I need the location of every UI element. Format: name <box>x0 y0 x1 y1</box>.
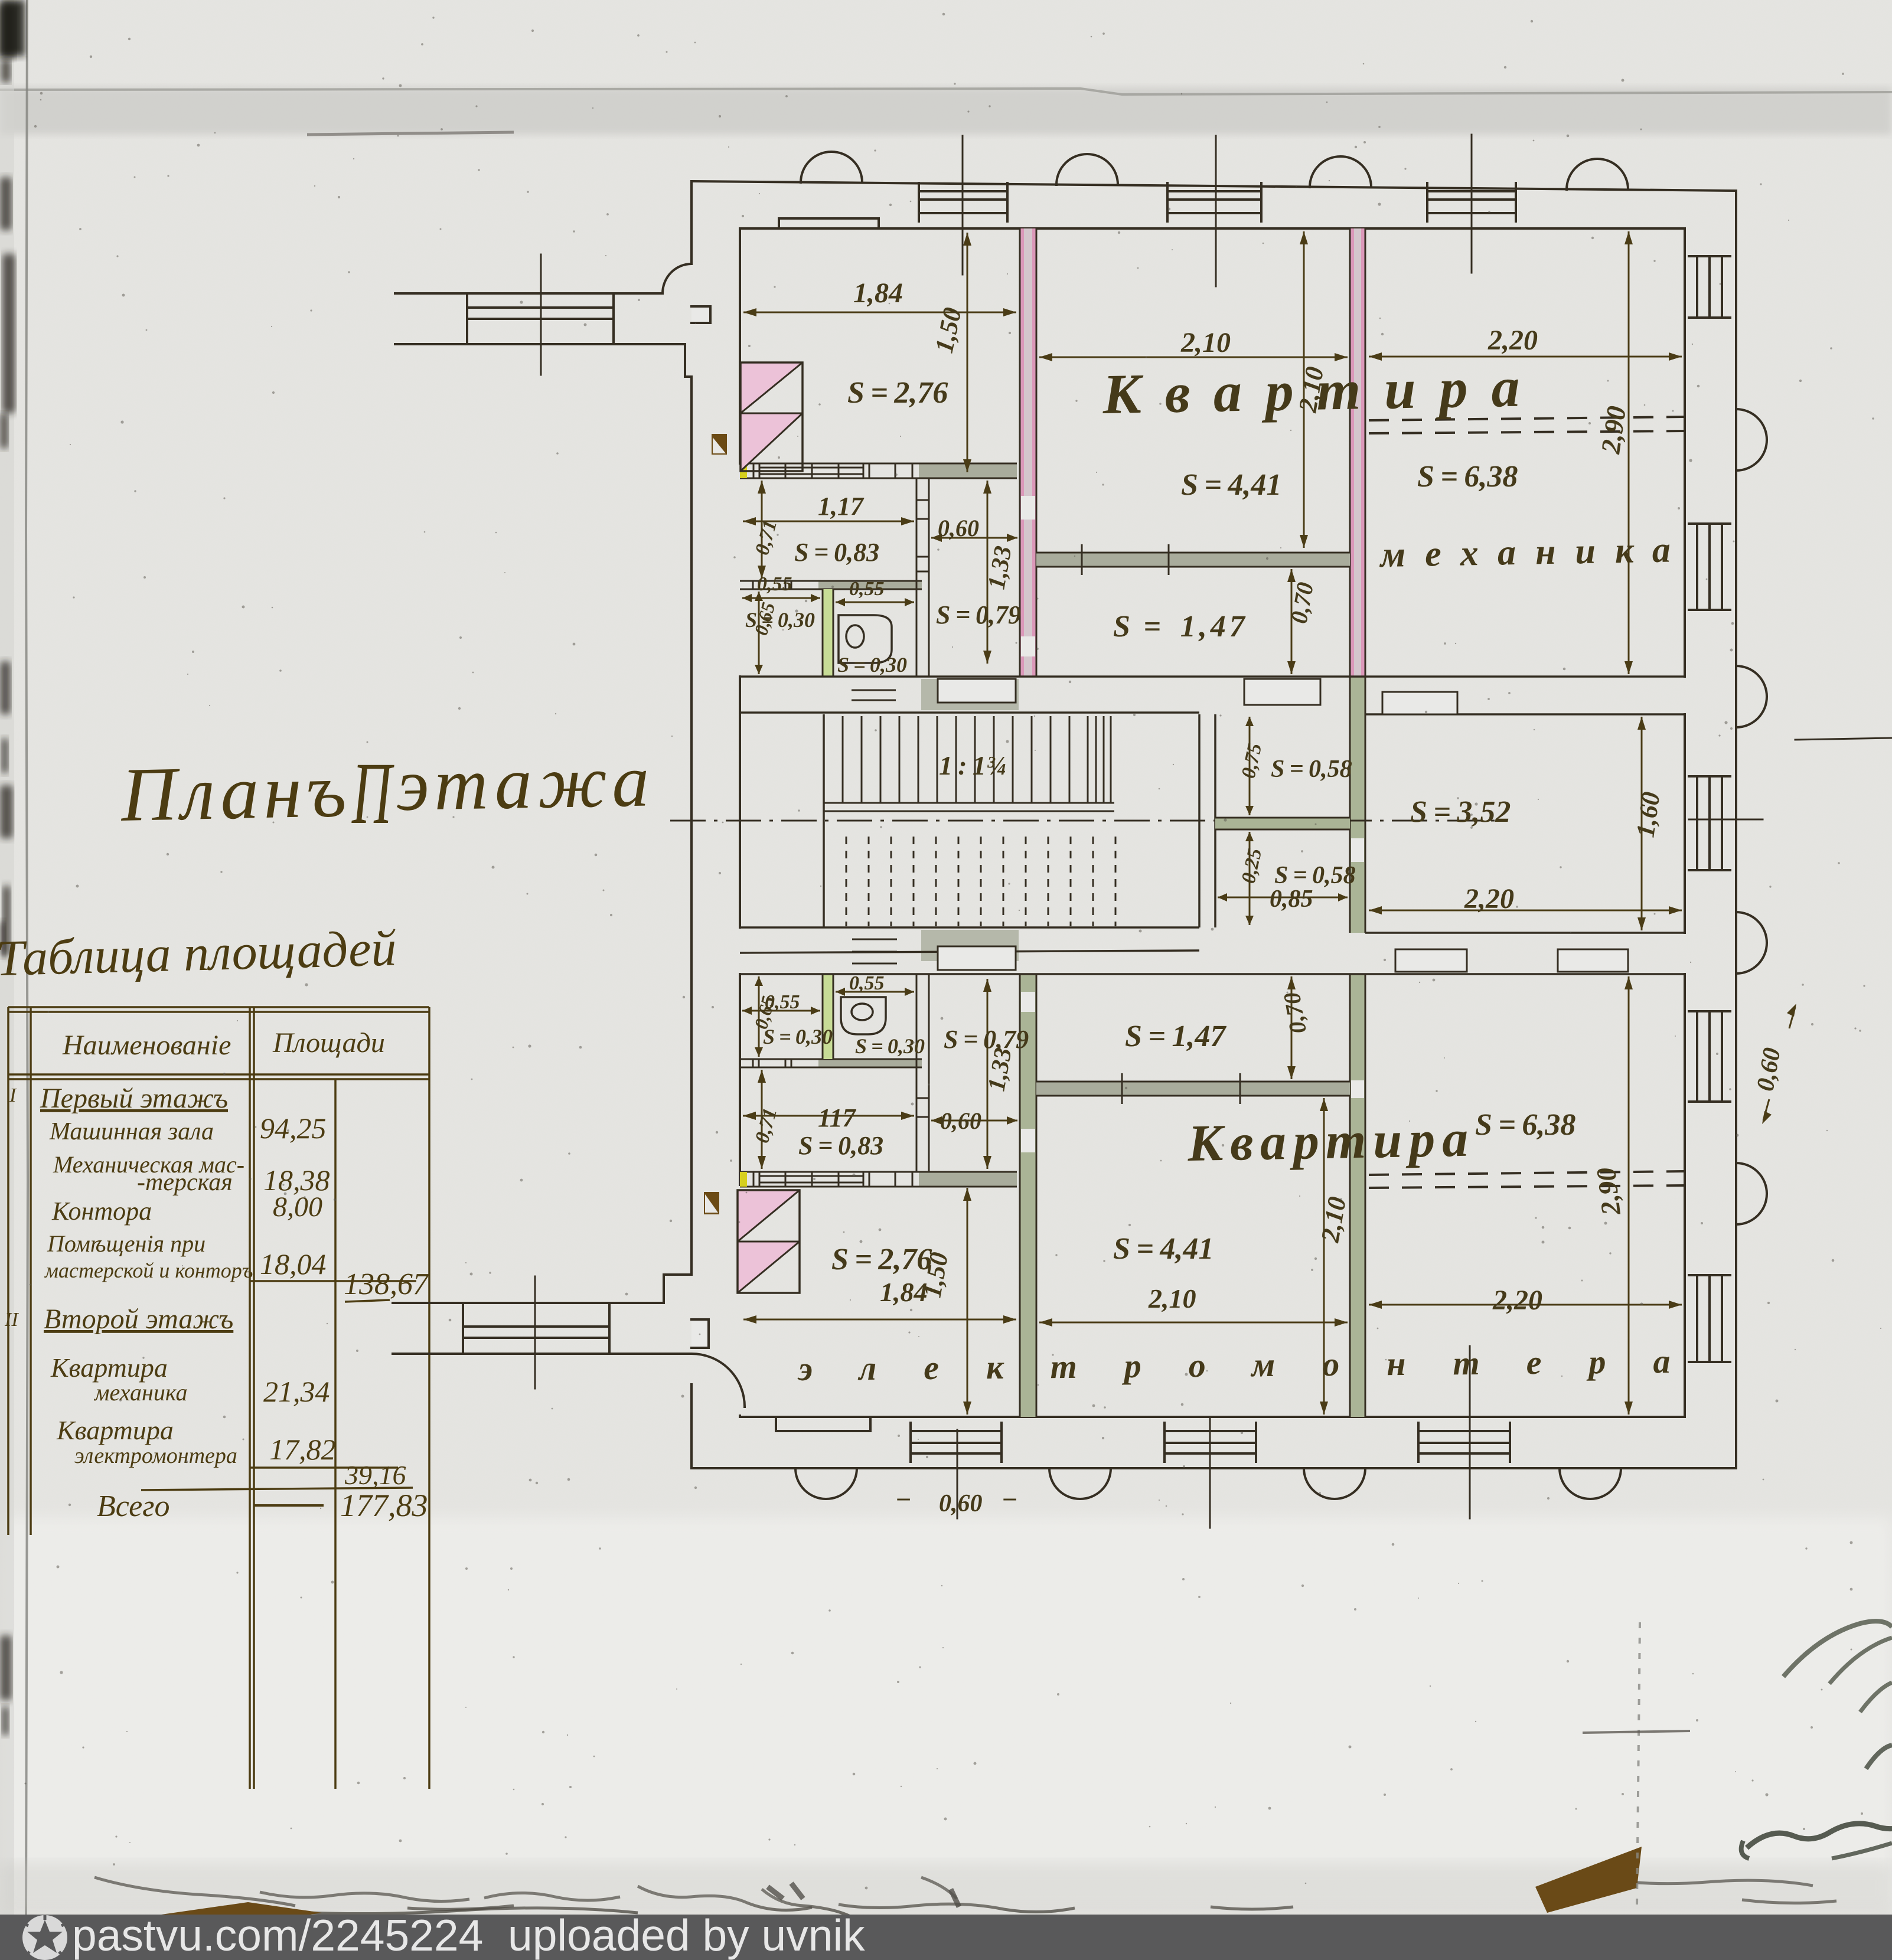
svg-text:1,84: 1,84 <box>853 277 903 309</box>
svg-text:117: 117 <box>818 1103 857 1132</box>
svg-text:S = 2,76: S = 2,76 <box>831 1243 932 1276</box>
svg-text:0,60: 0,60 <box>939 1490 983 1517</box>
svg-text:8,00: 8,00 <box>273 1191 322 1223</box>
svg-text:S = 0,30: S = 0,30 <box>855 1034 925 1058</box>
svg-text:II: II <box>4 1309 19 1331</box>
svg-text:мастерской и конторъ: мастерской и конторъ <box>44 1259 253 1282</box>
svg-text:1,17: 1,17 <box>818 492 865 521</box>
svg-text:Контора: Контора <box>51 1197 152 1226</box>
svg-text:138,67: 138,67 <box>344 1268 429 1301</box>
svg-text:–: – <box>1003 1484 1016 1511</box>
svg-text:18,04: 18,04 <box>260 1247 327 1280</box>
svg-text:S = 4,41: S = 4,41 <box>1181 468 1281 502</box>
svg-text:2,10: 2,10 <box>1180 327 1231 358</box>
svg-text:S = 0,83: S = 0,83 <box>798 1131 883 1160</box>
svg-text:0,60: 0,60 <box>938 515 979 541</box>
svg-text:электромонтера: электромонтера <box>74 1443 237 1468</box>
svg-text:Помѣщенія при: Помѣщенія при <box>47 1230 205 1257</box>
svg-text:S = 0,79: S = 0,79 <box>944 1025 1029 1054</box>
svg-text:0,85: 0,85 <box>1270 886 1313 913</box>
svg-text:39,16: 39,16 <box>344 1460 406 1490</box>
svg-text:Площади: Площади <box>272 1027 385 1059</box>
svg-text:Таблица площадей: Таблица площадей <box>0 919 397 986</box>
svg-text:S = 0,30: S = 0,30 <box>763 1025 833 1048</box>
svg-text:механика: механика <box>1378 530 1690 575</box>
svg-text:Машинная зала: Машинная зала <box>49 1118 214 1145</box>
svg-text:S = 0,79: S = 0,79 <box>936 600 1021 629</box>
svg-text:S = 1,47: S = 1,47 <box>1125 1020 1226 1053</box>
svg-text:2,20: 2,20 <box>1487 325 1538 356</box>
svg-text:0,55: 0,55 <box>849 578 885 600</box>
svg-text:Квартира: Квартира <box>56 1415 174 1445</box>
svg-text:-терская: -терская <box>137 1169 233 1196</box>
svg-text:2,20: 2,20 <box>1492 1285 1542 1316</box>
svg-text:Первый этажъ: Первый этажъ <box>40 1083 228 1114</box>
svg-text:2,20: 2,20 <box>1464 883 1514 914</box>
svg-text:94,25: 94,25 <box>260 1112 327 1145</box>
svg-text:2,90: 2,90 <box>1590 1166 1626 1217</box>
svg-text:S = 1,47: S = 1,47 <box>1113 610 1248 643</box>
svg-text:Квартира: Квартира <box>1187 1110 1476 1172</box>
svg-text:–: – <box>897 1484 910 1511</box>
svg-text:S = 0,30: S = 0,30 <box>837 653 907 677</box>
svg-text:I: I <box>9 1084 17 1106</box>
svg-text:S = 0,58: S = 0,58 <box>1271 756 1352 783</box>
svg-text:Всего: Всего <box>97 1489 170 1523</box>
svg-text:S = 3,52: S = 3,52 <box>1410 795 1511 829</box>
svg-text:электромонтера: электромонтера <box>797 1341 1718 1388</box>
svg-text:S = 2,76: S = 2,76 <box>847 376 948 410</box>
svg-text:П: П <box>351 744 395 842</box>
svg-text:S = 6,38: S = 6,38 <box>1417 460 1518 494</box>
svg-text:Наименованіе: Наименованіе <box>62 1030 231 1061</box>
svg-text:механика: механика <box>93 1379 188 1406</box>
svg-text:pastvu.com/2245224 uploaded b: pastvu.com/2245224 uploaded by uvnik <box>72 1910 865 1960</box>
svg-text:0,55: 0,55 <box>757 573 792 595</box>
svg-text:0,55: 0,55 <box>849 972 885 994</box>
svg-text:Планъ: Планъ <box>119 748 352 838</box>
svg-text:S = 6,38: S = 6,38 <box>1475 1108 1575 1142</box>
svg-text:1 : 1¾: 1 : 1¾ <box>939 750 1006 780</box>
svg-text:17,82: 17,82 <box>269 1433 336 1466</box>
svg-text:2,10: 2,10 <box>1148 1283 1196 1314</box>
svg-text:21,34: 21,34 <box>263 1375 330 1408</box>
svg-text:S = 4,41: S = 4,41 <box>1113 1232 1214 1266</box>
svg-text:Квартира: Квартира <box>50 1353 168 1383</box>
svg-text:177,83: 177,83 <box>340 1488 428 1523</box>
svg-text:Второй этажъ: Второй этажъ <box>44 1304 233 1335</box>
svg-text:этажа: этажа <box>396 740 655 827</box>
svg-text:0,60: 0,60 <box>940 1108 981 1134</box>
svg-text:S = 0,83: S = 0,83 <box>794 538 879 567</box>
